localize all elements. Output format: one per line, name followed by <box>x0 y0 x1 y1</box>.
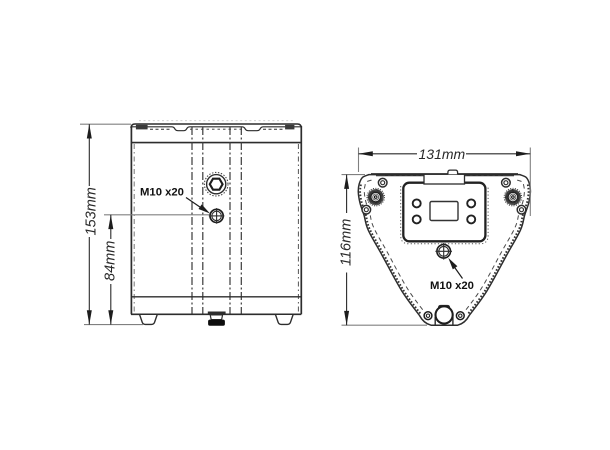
svg-text:131mm: 131mm <box>419 146 466 162</box>
svg-text:M10 x20: M10 x20 <box>430 280 474 292</box>
svg-text:116mm: 116mm <box>339 219 355 266</box>
svg-text:M10 x20: M10 x20 <box>140 187 184 199</box>
svg-text:84mm: 84mm <box>103 241 119 281</box>
svg-text:153mm: 153mm <box>84 187 100 235</box>
